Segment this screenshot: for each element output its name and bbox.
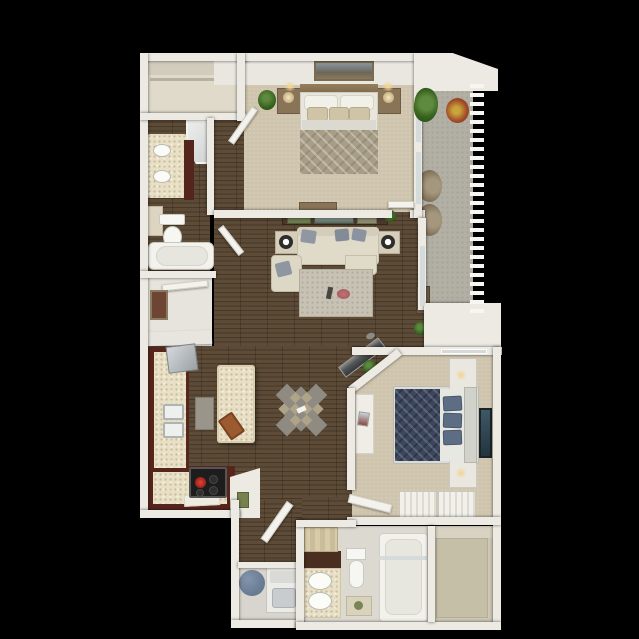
sofa-pillow-c bbox=[351, 228, 367, 242]
floor-plan-image bbox=[0, 0, 639, 639]
washer-door bbox=[272, 588, 296, 608]
wall-laundry-bottom bbox=[231, 620, 303, 628]
hall2-floor bbox=[302, 497, 352, 520]
rug-flowers bbox=[337, 289, 350, 299]
vanity1-cabinet bbox=[184, 140, 194, 200]
window-bedroom2 bbox=[441, 349, 487, 354]
wall-bath1-bottom bbox=[140, 271, 216, 278]
sink2-b bbox=[308, 592, 332, 610]
lamp1-right bbox=[383, 92, 394, 103]
bed2-pillow-b bbox=[443, 413, 463, 429]
desk-item bbox=[357, 411, 370, 426]
bathtub-2-glass bbox=[379, 556, 428, 560]
wall-living-divider-a bbox=[214, 210, 392, 218]
wall-top-closet bbox=[140, 53, 248, 61]
bed1-wall-art bbox=[314, 61, 374, 81]
kitchen-sink-a bbox=[163, 404, 184, 420]
kitchen-mat-gray bbox=[195, 397, 214, 430]
closet2-shelf bbox=[434, 526, 494, 538]
refrigerator bbox=[165, 343, 198, 373]
balcony-railing bbox=[470, 84, 484, 314]
lamp1-left bbox=[283, 92, 294, 103]
nightstand2-top-glow bbox=[455, 370, 467, 380]
bedroom2-wall-art bbox=[479, 408, 492, 458]
wall-balcony-top bbox=[414, 53, 498, 91]
kitchen-sink-b bbox=[163, 422, 184, 438]
nook-console bbox=[148, 330, 212, 346]
sink1-a bbox=[153, 144, 171, 157]
balcony-croton bbox=[446, 98, 469, 123]
bed1-cushion-b bbox=[329, 107, 349, 121]
bed1-cushion-c bbox=[349, 107, 370, 121]
sconce-glow-left bbox=[283, 82, 297, 91]
wall-bath2-top bbox=[296, 520, 356, 527]
table-lamp-right bbox=[381, 235, 395, 249]
stove-burner-c bbox=[196, 489, 204, 497]
washer-panel bbox=[270, 571, 298, 583]
bedroom1-plant bbox=[258, 90, 276, 110]
wall-kitchen-bottom bbox=[140, 510, 240, 518]
wall-bath2-left bbox=[296, 520, 304, 630]
wall-laundry-divider bbox=[238, 562, 302, 568]
bed1-cushion-a bbox=[307, 107, 328, 121]
closet2-back bbox=[436, 538, 488, 618]
wall-bath2-bottom bbox=[296, 622, 501, 630]
stove-burner-red bbox=[195, 477, 206, 488]
sconce-glow-right bbox=[381, 82, 395, 91]
balcony-door-glass bbox=[420, 246, 425, 306]
sink2-a bbox=[308, 572, 332, 590]
bath2-mat-motif bbox=[354, 601, 363, 610]
stove-burner-a bbox=[209, 475, 218, 484]
nook-wall-art bbox=[150, 290, 168, 320]
closet-door-slat-b bbox=[438, 491, 476, 518]
closet-door-slat-a bbox=[399, 491, 437, 518]
toilet2-bowl bbox=[349, 560, 364, 588]
toilet1-tank bbox=[159, 214, 185, 225]
wall-bedroom2-left bbox=[347, 388, 355, 490]
wall-left bbox=[140, 53, 148, 518]
sofa-pillow-a bbox=[300, 229, 317, 244]
wall-closet-bath-divider bbox=[140, 113, 246, 120]
wall-bath1-right bbox=[207, 118, 214, 215]
door-bedroom1-south bbox=[388, 201, 414, 208]
bed2-pillow-a bbox=[443, 396, 463, 412]
wall-closet-right bbox=[237, 53, 245, 121]
living-rug bbox=[299, 269, 373, 317]
towel-rack bbox=[304, 527, 338, 552]
sofa-pillow-b bbox=[334, 228, 349, 241]
bathtub-2-basin bbox=[385, 539, 422, 615]
bed2-pillow-c bbox=[443, 430, 463, 446]
nightstand2-bottom-glow bbox=[455, 468, 467, 478]
toilet2-tank bbox=[346, 548, 366, 560]
bed1-duvet bbox=[300, 130, 378, 174]
bed2-duvet bbox=[395, 389, 441, 461]
headboard-2 bbox=[464, 387, 477, 463]
laundry-hamper bbox=[239, 570, 265, 596]
table-lamp-left bbox=[279, 235, 293, 249]
wall-bedroom2-bottom bbox=[347, 517, 501, 525]
vanity1-counter bbox=[147, 134, 187, 198]
wall-top-bedroom1 bbox=[243, 53, 423, 61]
bathtub-1-basin bbox=[156, 246, 208, 266]
sink1-b bbox=[153, 170, 171, 183]
wall-exterior-chunk bbox=[424, 303, 501, 351]
vanity2-dark-counter bbox=[303, 551, 341, 569]
window-bedroom1-b bbox=[416, 152, 421, 204]
wall-closet2-divider bbox=[428, 526, 435, 622]
wall-bedroom2-right bbox=[493, 347, 501, 630]
stove-burner-b bbox=[209, 486, 218, 495]
